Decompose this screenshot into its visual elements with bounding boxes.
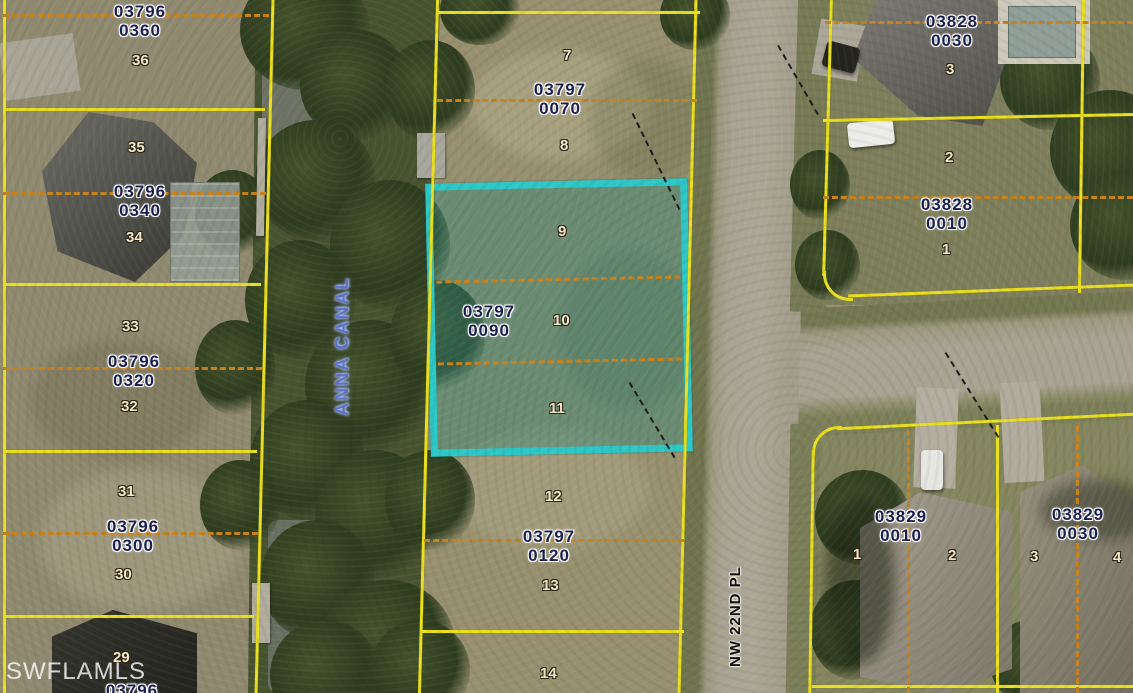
lot-line xyxy=(438,357,682,365)
parcel-line xyxy=(812,685,1133,688)
lot-number: 4 xyxy=(1113,549,1121,566)
lot-number: 7 xyxy=(563,47,571,64)
parcel-number: 03796 xyxy=(94,352,174,371)
parcel-number: 0010 xyxy=(861,526,941,545)
parcel-number: 0070 xyxy=(520,99,600,118)
tree xyxy=(200,460,280,550)
parcel-label: 03797 0120 xyxy=(509,527,589,565)
lot-number: 33 xyxy=(122,318,139,335)
lot-line xyxy=(436,275,680,283)
parcel-line xyxy=(3,615,254,618)
parcel-number: 0360 xyxy=(100,21,180,40)
lot-number: 12 xyxy=(545,488,562,505)
parcel-number: 0030 xyxy=(1038,524,1118,543)
lot-number: 34 xyxy=(126,229,143,246)
parcel-label: 03796 0320 xyxy=(94,352,174,390)
parcel-number: 03796 xyxy=(93,517,173,536)
pool-cage xyxy=(170,182,240,282)
lot-line xyxy=(907,430,910,693)
tree xyxy=(790,150,850,220)
tree xyxy=(385,40,475,140)
lot-number: 32 xyxy=(121,398,138,415)
parcel-number: 0010 xyxy=(907,214,987,233)
lot-number: 9 xyxy=(558,223,566,240)
parcel-line xyxy=(421,630,684,633)
parcel-number: 03829 xyxy=(861,507,941,526)
parcel-line xyxy=(3,450,257,453)
parcel-number: 03797 xyxy=(509,527,589,546)
parcel-line xyxy=(3,108,265,111)
lot-number: 30 xyxy=(115,566,132,583)
parcel-number: 03829 xyxy=(1038,505,1118,524)
parcel-label: 03829 0010 xyxy=(861,507,941,545)
parcel-label: 03797 0090 xyxy=(449,302,529,340)
tree xyxy=(385,450,475,550)
tree xyxy=(440,0,520,45)
parcel-number: 03797 xyxy=(449,302,529,321)
parcel-number: 03797 xyxy=(520,80,600,99)
parcel-label: 03797 0070 xyxy=(520,80,600,118)
lot-number: 13 xyxy=(542,577,559,594)
lot-number: 10 xyxy=(553,312,570,329)
lot-number: 3 xyxy=(946,61,954,78)
lot-number: 1 xyxy=(942,241,950,258)
mls-watermark: SWFLAMLS xyxy=(6,658,146,686)
driveway xyxy=(999,381,1044,483)
parcel-label: 03828 0030 xyxy=(912,12,992,50)
parcel-number: 03828 xyxy=(912,12,992,31)
lot-number: 2 xyxy=(948,547,956,564)
lot-number: 35 xyxy=(128,139,145,156)
parcel-line xyxy=(3,0,6,693)
lot-number: 3 xyxy=(1030,548,1038,565)
parcel-number: 0120 xyxy=(509,546,589,565)
parcel-label: 03796 0300 xyxy=(93,517,173,555)
parcel-number: 0300 xyxy=(93,536,173,555)
parcel-label: 03828 0010 xyxy=(907,195,987,233)
lot-number: 14 xyxy=(540,665,557,682)
parcel-number: 0030 xyxy=(912,31,992,50)
parcel-label: 03796 0340 xyxy=(100,182,180,220)
driveway xyxy=(0,33,81,101)
parcel-line xyxy=(3,283,261,286)
lot-number: 8 xyxy=(560,137,568,154)
parcel-number: 03796 xyxy=(100,182,180,201)
lot-number: 2 xyxy=(945,149,953,166)
lot-number: 11 xyxy=(549,400,565,417)
truck xyxy=(921,450,943,490)
parcel-line xyxy=(438,11,700,14)
lot-number: 31 xyxy=(118,483,135,500)
parcel-label: 03796 0360 xyxy=(100,2,180,40)
lot-number: 1 xyxy=(853,546,861,563)
dock xyxy=(252,583,270,643)
parcel-number: 0320 xyxy=(94,371,174,390)
parcel-number: 03796 xyxy=(100,2,180,21)
parcel-line xyxy=(996,425,999,693)
lot-line xyxy=(1076,426,1079,693)
lot-number: 36 xyxy=(132,52,149,69)
aerial-parcel-map: 03796 0360 03796 0340 03796 0320 03796 0… xyxy=(0,0,1133,693)
parcel-number: 0090 xyxy=(449,321,529,340)
parcel-number: 0340 xyxy=(100,201,180,220)
pool-enclosure xyxy=(1008,6,1076,58)
parcel-label: 03829 0030 xyxy=(1038,505,1118,543)
car xyxy=(847,119,895,149)
parcel-number: 03828 xyxy=(907,195,987,214)
street-name-label: NW 22ND PL xyxy=(727,525,744,667)
canal-name-label: ANNA CANAL xyxy=(332,258,353,416)
